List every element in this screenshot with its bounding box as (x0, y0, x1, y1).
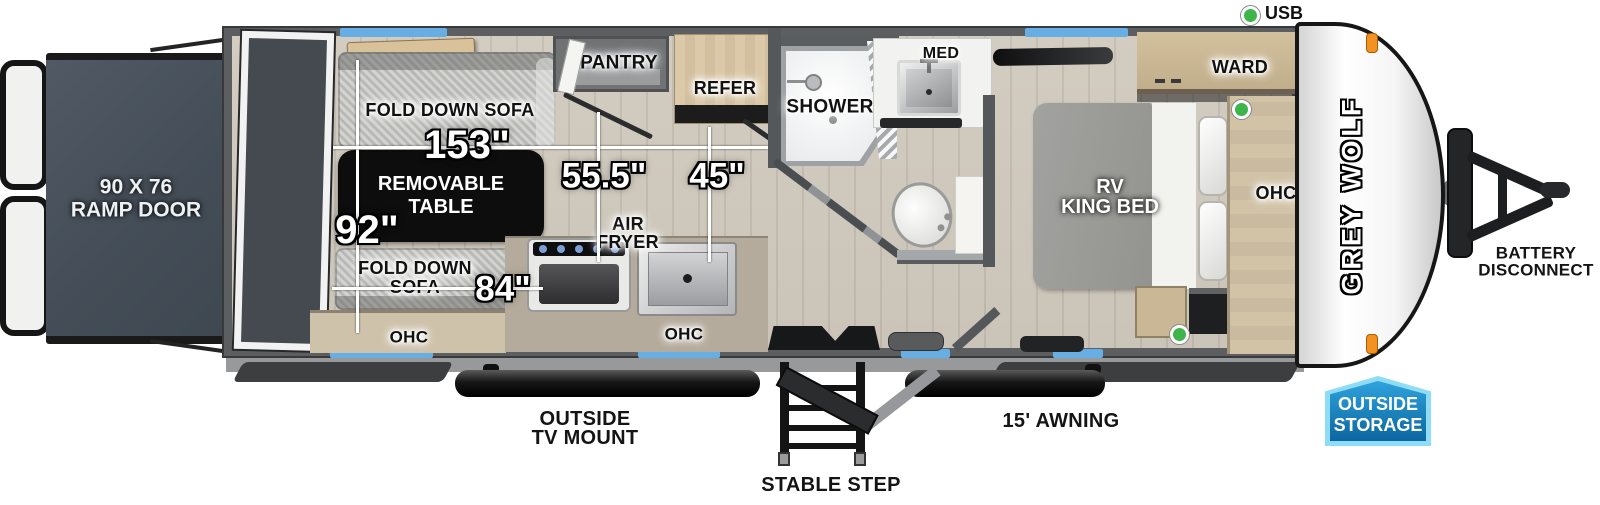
ramp-door: 90 X 76 RAMP DOOR (46, 60, 226, 336)
dimension-153: 153" (424, 125, 510, 165)
step-foot (778, 452, 790, 466)
marker-light (1366, 334, 1378, 354)
bed-label: KING BED (1061, 197, 1159, 217)
faucet-stem (927, 63, 931, 73)
burner (557, 245, 565, 253)
dimension-45: 45" (689, 159, 745, 194)
outside-storage-badge-inner: OUTSIDE STORAGE (1330, 381, 1426, 441)
vanity-shadow (880, 118, 962, 128)
bedroom-cabinet-dark (1189, 288, 1227, 334)
entry-step-well (768, 326, 880, 350)
oven-area (539, 264, 619, 304)
dimension-92: 92" (335, 210, 398, 250)
dimension-line-92 (356, 60, 359, 333)
hitch-coupler (1540, 182, 1570, 198)
a-frame-cross (1498, 168, 1507, 226)
rear-door-opening (234, 31, 334, 351)
outside-storage-badge: OUTSIDE STORAGE (1325, 376, 1431, 446)
shower-label: SHOWER (786, 98, 873, 117)
outside-tv-mount-label: TV MOUNT (532, 428, 639, 448)
med-cabinet-label: MED (923, 46, 959, 62)
bed-label: RV (1096, 177, 1123, 197)
window-strip (340, 28, 447, 37)
tv-mount-bar (455, 370, 760, 397)
cabinet-handle (1171, 79, 1181, 83)
awning-label: 15' AWNING (1002, 411, 1119, 431)
step-foot (854, 452, 866, 466)
underbody-shadow (233, 362, 454, 382)
ohc-label-bedroom: OHC (1256, 184, 1297, 202)
bedroom-tv (993, 47, 1113, 66)
usb-legend-dot (1241, 6, 1260, 25)
dimension-84: 84" (475, 272, 531, 307)
front-cap (1295, 22, 1445, 368)
wall-bath-bedroom (983, 95, 995, 267)
outside-storage-label: STORAGE (1334, 416, 1423, 436)
battery-disconnect-label: DISCONNECT (1478, 262, 1593, 279)
brand-logo: GREY WOLF (1339, 95, 1366, 294)
air-fryer-label: AIR (612, 215, 644, 233)
stable-step-label: STABLE STEP (761, 475, 901, 495)
pillow (1198, 201, 1228, 281)
usb-legend-label: USB (1265, 4, 1303, 22)
floorplan-diagram: USB 90 X 76 RAMP DOOR FOLD DOWN SOFA REM… (0, 0, 1600, 505)
burner (575, 245, 583, 253)
a-frame-lower (1466, 195, 1555, 242)
window-strip (1025, 28, 1128, 37)
pantry-label: PANTRY (580, 54, 658, 73)
entry-mat (888, 332, 944, 351)
bath-sink-drain (926, 89, 932, 95)
bath-sink (897, 60, 961, 116)
outside-storage-label: OUTSIDE (1338, 395, 1418, 415)
ohc-label-garage: OHC (390, 329, 429, 346)
dimension-55: 55.5" (562, 159, 647, 194)
burner (539, 245, 547, 253)
fold-down-sofa-top-label: FOLD DOWN SOFA (365, 101, 534, 119)
usb-port-dot (1232, 100, 1251, 119)
usb-port-dot (1170, 325, 1189, 344)
kitchen-sink (637, 242, 737, 316)
ramp-rail-panel (0, 60, 48, 190)
ohc-label-kitchen: OHC (665, 326, 704, 343)
ohc-cabinet-bedroom (1227, 96, 1297, 354)
outside-tv-mount-label: OUTSIDE (540, 409, 631, 429)
bath-sink-basin (906, 69, 952, 107)
step-rung (780, 443, 865, 449)
sofa-backrest (338, 52, 556, 70)
battery-disconnect-label: BATTERY (1496, 245, 1576, 262)
refer-label: REFER (694, 79, 757, 97)
pillow (1198, 116, 1228, 196)
sink-drain (683, 274, 692, 283)
wardrobe-label: WARD (1212, 58, 1268, 76)
fold-down-sofa-bottom-label: FOLD DOWN (358, 259, 472, 277)
removable-table-label: REMOVABLE (378, 174, 504, 194)
marker-light (1366, 33, 1378, 53)
ramp-door-size-label: 90 X 76 (100, 177, 172, 198)
refer-base (675, 105, 771, 123)
wall-kitchen-bath (768, 28, 781, 168)
ramp-rail-panel (0, 196, 50, 336)
shower-head (805, 74, 822, 91)
removable-table-label: TABLE (408, 197, 473, 217)
dimension-line-153 (333, 146, 768, 149)
air-fryer-label: FRYER (597, 233, 659, 251)
cabinet-handle (1155, 79, 1165, 83)
ramp-door-label: RAMP DOOR (71, 200, 201, 221)
bedroom-tv-lower (1020, 336, 1084, 352)
